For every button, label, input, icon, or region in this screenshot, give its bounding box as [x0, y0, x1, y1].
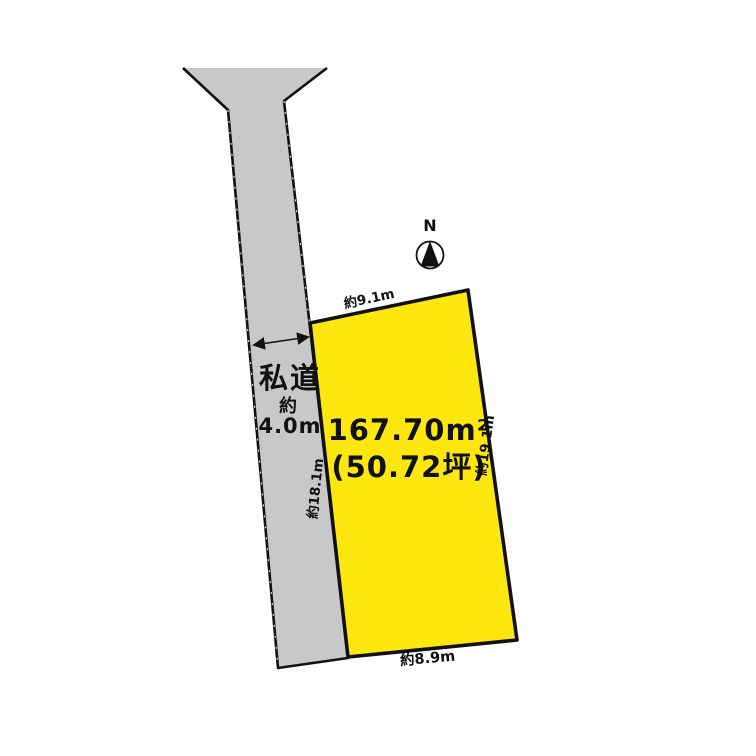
- plot-area-tsubo-label: (50.72坪): [331, 450, 486, 484]
- compass-north-label: N: [423, 216, 436, 235]
- road-name-label: 私道: [259, 361, 321, 395]
- road-width-value-label: 4.0m: [258, 414, 321, 438]
- site-plan-canvas: N 私道 約 4.0m 167.70m² (50.72坪) 約9.1m 約19.…: [0, 0, 756, 756]
- plot-area-sqm-label: 167.70m²: [328, 413, 491, 447]
- site-plan-svg: N 私道 約 4.0m 167.70m² (50.72坪) 約9.1m 約19.…: [0, 0, 756, 756]
